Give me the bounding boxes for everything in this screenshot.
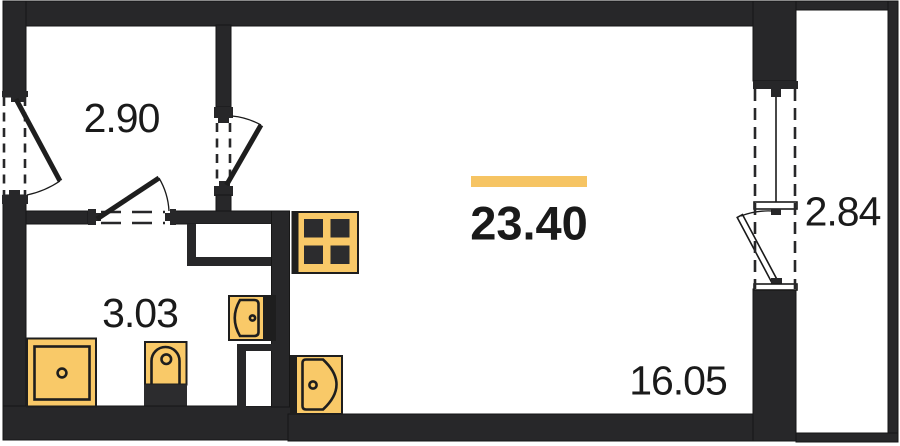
svg-text:16.05: 16.05 bbox=[629, 358, 727, 404]
svg-text:23.40: 23.40 bbox=[470, 197, 588, 250]
svg-text:2.84: 2.84 bbox=[805, 189, 881, 235]
svg-text:2.90: 2.90 bbox=[84, 95, 160, 141]
svg-text:3.03: 3.03 bbox=[102, 290, 178, 336]
